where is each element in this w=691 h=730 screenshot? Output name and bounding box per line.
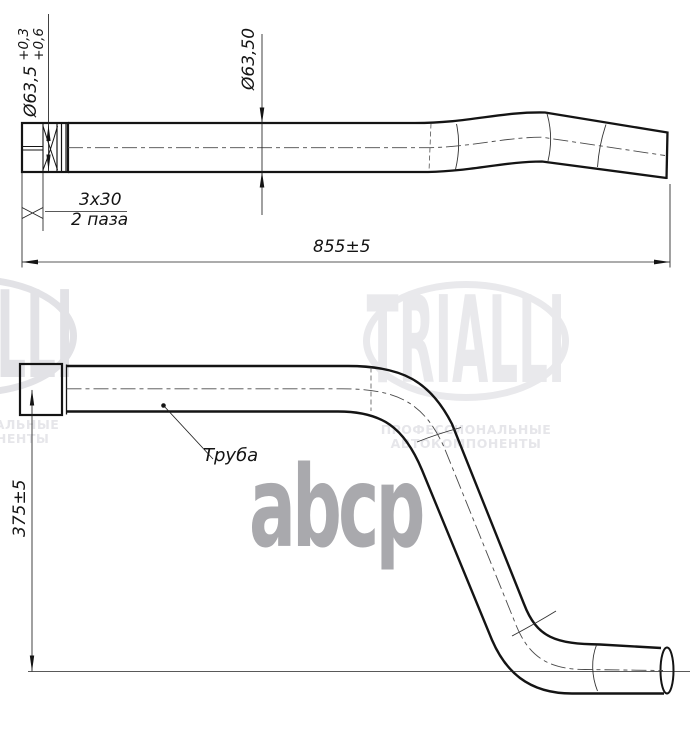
arrowhead (30, 656, 34, 672)
seam-arc (456, 124, 459, 170)
side-view-dimensions (28, 390, 690, 672)
dimension-height-375: 375±5 (12, 479, 30, 537)
dimension-length-855: 855±5 (313, 239, 371, 257)
pipe-bottom-edge (68, 162, 667, 179)
dia-left-value: Ø63,5 (23, 66, 41, 117)
pipe-end-face (667, 132, 668, 180)
pipe-top-edge (68, 112, 668, 132)
tolerance-lower: +0,6 (32, 28, 47, 61)
arrowhead (654, 260, 670, 265)
top-view (22, 112, 668, 179)
tolerance-upper: +0,3 (17, 28, 32, 61)
pipe-centerline (67, 389, 664, 671)
pipe-outer-edge (67, 366, 662, 648)
slot-lens-marks (43, 126, 58, 170)
arrowhead (260, 172, 265, 188)
seam-arc (547, 114, 551, 162)
seam-arc (512, 611, 556, 636)
arrowhead (46, 125, 50, 141)
dia-left-tolerances: +0,3 +0,6 (17, 28, 47, 61)
slot-dimension-line1: 3x30 (79, 192, 122, 210)
arrowhead (260, 108, 265, 124)
side-flange-outline (20, 364, 62, 415)
part-name-label: Труба (203, 447, 258, 466)
pipe-centerline (68, 137, 665, 155)
arrowhead (22, 260, 38, 265)
pipe-inner-edge (67, 412, 665, 694)
arrowhead (46, 155, 50, 171)
leader-dot (161, 403, 166, 408)
seam-arc (417, 428, 461, 443)
slot-dimension-line2: 2 паза (71, 212, 128, 230)
side-view (20, 364, 674, 694)
drawing-sheet: TRIALLI ПРОФЕССИОНАЛЬНЫЕ АВТОКОМПОНЕНТЫ … (0, 0, 691, 730)
seam-arc (593, 645, 598, 691)
slot-side-lines (22, 147, 43, 151)
dimension-dia-63-5: Ø63,5 +0,3 +0,6 (17, 28, 47, 117)
flange-bead-lines (57, 124, 66, 172)
pipe-drawing (0, 0, 691, 730)
arrowhead (30, 390, 34, 406)
dimension-dia-63-50: Ø63,50 (241, 28, 259, 90)
slot-bottom-cross (22, 208, 43, 219)
